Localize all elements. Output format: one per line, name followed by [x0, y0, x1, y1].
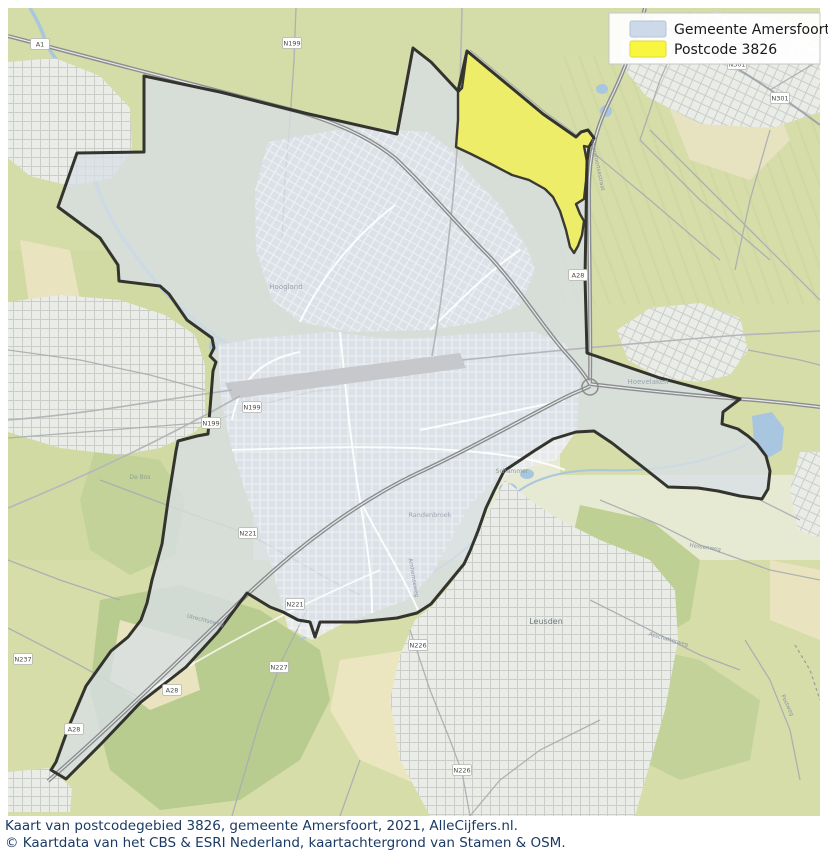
svg-text:N199: N199: [283, 40, 300, 48]
caption: Kaart van postcodegebied 3826, gemeente …: [5, 818, 566, 852]
map-canvas: HooglandRandenbroekSchammerLeusdenDe Bos…: [0, 0, 828, 818]
road-shield-n226: N226: [453, 765, 472, 776]
place-label: Leusden: [529, 617, 563, 626]
legend-swatch: [630, 41, 666, 57]
svg-text:A28: A28: [166, 687, 179, 695]
legend-item-label: Postcode 3826: [674, 42, 777, 58]
road-shield-n226: N226: [409, 640, 428, 651]
road-shield-n199: N199: [243, 402, 262, 413]
svg-text:A1: A1: [36, 41, 45, 49]
road-shield-a28: A28: [569, 270, 588, 281]
svg-text:N199: N199: [243, 404, 260, 412]
svg-text:N226: N226: [453, 767, 470, 775]
road-shield-n221: N221: [239, 528, 258, 539]
legend-item-label: Gemeente Amersfoort: [674, 22, 828, 38]
road-shield-n221: N221: [286, 599, 305, 610]
road-shield-n199: N199: [283, 38, 302, 49]
legend-swatch: [630, 21, 666, 37]
svg-text:N226: N226: [409, 642, 426, 650]
place-label: Randenbroek: [408, 511, 451, 519]
caption-line1: Kaart van postcodegebied 3826, gemeente …: [5, 818, 566, 835]
road-shield-n227: N227: [270, 662, 289, 673]
road-shield-a1: A1: [31, 39, 50, 50]
road-shield-n301: N301: [771, 93, 790, 104]
map-figure: HooglandRandenbroekSchammerLeusdenDe Bos…: [0, 0, 828, 861]
svg-text:A28: A28: [68, 726, 81, 734]
road-shield-a28: A28: [163, 685, 182, 696]
svg-text:N221: N221: [286, 601, 303, 609]
svg-text:N237: N237: [14, 656, 31, 664]
place-label: Schammer: [496, 468, 529, 475]
svg-text:A28: A28: [572, 272, 585, 280]
svg-text:N227: N227: [270, 664, 287, 672]
place-label: De Bos: [129, 474, 150, 481]
road-shield-n237: N237: [14, 654, 33, 665]
svg-text:N301: N301: [771, 95, 788, 103]
legend: Gemeente AmersfoortPostcode 3826: [609, 13, 828, 64]
caption-line2: © Kaartdata van het CBS & ESRI Nederland…: [5, 835, 566, 852]
road-shield-a28: A28: [65, 724, 84, 735]
svg-text:N221: N221: [239, 530, 256, 538]
place-label: Hoevelaken: [627, 378, 668, 386]
place-label: Hoogland: [269, 283, 302, 291]
svg-text:N199: N199: [202, 420, 219, 428]
road-shield-n199: N199: [202, 418, 221, 429]
